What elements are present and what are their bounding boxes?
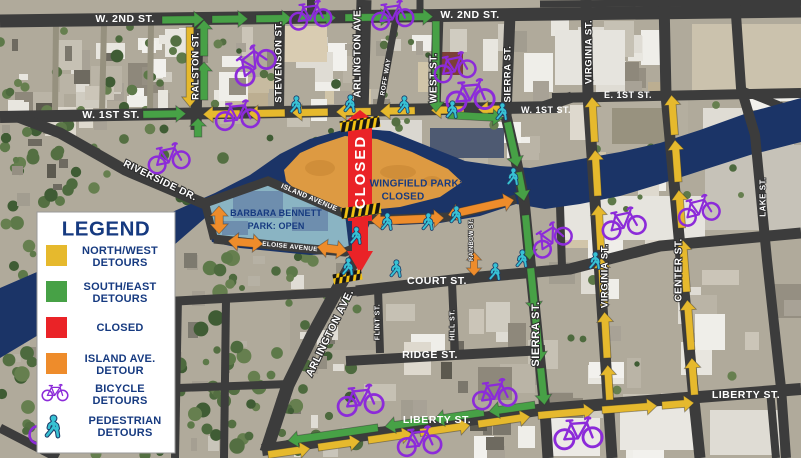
svg-text:PARK: OPEN: PARK: OPEN bbox=[248, 221, 305, 231]
svg-text:PEDESTRIAN: PEDESTRIAN bbox=[89, 415, 162, 427]
svg-text:CLOSED: CLOSED bbox=[96, 322, 143, 334]
svg-text:CLOSED: CLOSED bbox=[382, 192, 425, 203]
svg-text:VIRGINIA ST.: VIRGINIA ST. bbox=[600, 244, 611, 308]
svg-text:VIRGINIA ST.: VIRGINIA ST. bbox=[584, 20, 595, 84]
svg-text:RALSTON ST.: RALSTON ST. bbox=[191, 32, 202, 100]
svg-text:CLOSED: CLOSED bbox=[352, 135, 369, 210]
svg-text:DETOURS: DETOURS bbox=[93, 293, 148, 305]
svg-text:E. 1ST ST.: E. 1ST ST. bbox=[604, 90, 652, 100]
svg-text:ARLINGTON AVE.: ARLINGTON AVE. bbox=[353, 6, 364, 97]
svg-text:W. 2ND ST.: W. 2ND ST. bbox=[95, 13, 154, 25]
svg-text:LIBERTY ST.: LIBERTY ST. bbox=[712, 389, 780, 401]
svg-text:WINGFIELD PARK:: WINGFIELD PARK: bbox=[370, 179, 463, 190]
svg-text:LAKE ST.: LAKE ST. bbox=[759, 177, 768, 217]
svg-text:W. 2ND ST.: W. 2ND ST. bbox=[440, 9, 499, 21]
svg-text:WEST ST.: WEST ST. bbox=[429, 53, 440, 103]
svg-text:W. 1ST ST.: W. 1ST ST. bbox=[82, 109, 140, 121]
svg-text:SIERRA ST.: SIERRA ST. bbox=[530, 301, 542, 366]
svg-text:DETOUR: DETOUR bbox=[96, 365, 143, 377]
svg-text:BICYCLE: BICYCLE bbox=[95, 383, 145, 395]
svg-text:W. 1ST ST.: W. 1ST ST. bbox=[521, 105, 571, 115]
svg-text:LEGEND: LEGEND bbox=[62, 218, 150, 241]
svg-text:HILL ST.: HILL ST. bbox=[450, 309, 457, 340]
svg-text:DETOURS: DETOURS bbox=[98, 427, 153, 439]
svg-text:SIERRA ST.: SIERRA ST. bbox=[503, 46, 514, 103]
svg-text:NORTH/WEST: NORTH/WEST bbox=[82, 245, 158, 257]
svg-text:DETOURS: DETOURS bbox=[93, 395, 148, 407]
svg-text:CENTER ST.: CENTER ST. bbox=[674, 238, 685, 301]
svg-text:SOUTH/EAST: SOUTH/EAST bbox=[84, 281, 157, 293]
svg-text:COURT ST.: COURT ST. bbox=[407, 275, 467, 287]
svg-text:RAINBOW ST.: RAINBOW ST. bbox=[469, 219, 475, 261]
svg-text:BARBARA BENNETT: BARBARA BENNETT bbox=[230, 208, 322, 218]
svg-text:ISLAND AVE.: ISLAND AVE. bbox=[85, 353, 156, 365]
svg-text:FLINT ST.: FLINT ST. bbox=[375, 304, 382, 340]
svg-text:DETOURS: DETOURS bbox=[93, 257, 148, 269]
svg-text:RIDGE ST.: RIDGE ST. bbox=[402, 349, 458, 361]
svg-text:LIBERTY ST.: LIBERTY ST. bbox=[403, 414, 471, 426]
